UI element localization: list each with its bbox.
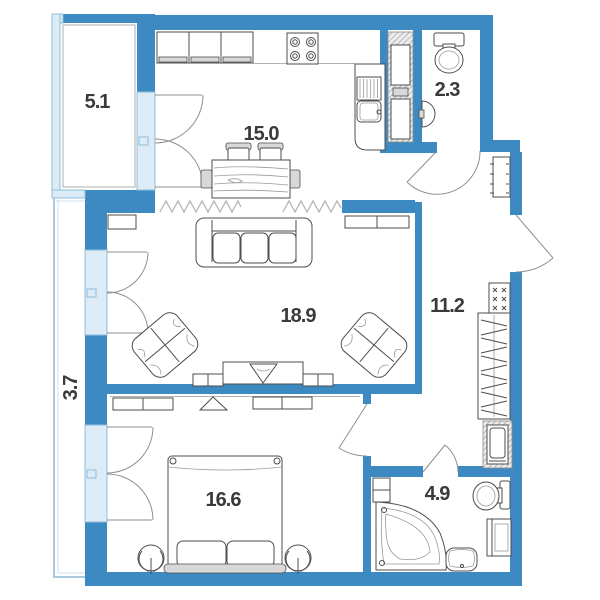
kitchen-counter-sink bbox=[355, 64, 385, 150]
nightstand-left bbox=[138, 545, 164, 574]
bed bbox=[164, 456, 286, 573]
room-label-balcony: 5.1 bbox=[85, 91, 111, 113]
balcony-french-door bbox=[137, 92, 203, 190]
hall-appliance-niche bbox=[483, 421, 512, 468]
bathroom-sink bbox=[446, 548, 477, 571]
dining-table bbox=[201, 143, 300, 198]
wardrobe-hangers bbox=[478, 313, 510, 419]
wc-door bbox=[407, 151, 480, 194]
bedroom-door bbox=[339, 404, 367, 456]
bathroom-door bbox=[423, 445, 458, 472]
bedroom-french-door bbox=[85, 425, 153, 522]
entry-door bbox=[516, 215, 553, 272]
shoe-cabinet bbox=[489, 283, 510, 313]
bedroom-storage-row bbox=[110, 397, 360, 411]
wall-break-zigzag bbox=[160, 201, 341, 212]
armchair-right bbox=[337, 309, 411, 382]
kitchen-cabinets bbox=[157, 32, 355, 64]
armchair-left bbox=[128, 309, 202, 382]
floor-plan: 5.1 15.0 2.3 18.9 11.2 3.7 16.6 4.9 bbox=[0, 0, 600, 600]
room-label-hall: 11.2 bbox=[430, 295, 465, 317]
sofa bbox=[196, 218, 312, 267]
room-label-loggia: 3.7 bbox=[60, 375, 82, 401]
washing-machine bbox=[487, 519, 511, 556]
floor-plan-canvas: 5.1 15.0 2.3 18.9 11.2 3.7 16.6 4.9 bbox=[0, 0, 600, 600]
kitchen-stove bbox=[287, 33, 318, 64]
room-label-living: 18.9 bbox=[281, 305, 317, 327]
room-label-bedroom: 16.6 bbox=[206, 489, 242, 511]
room-label-kitchen: 15.0 bbox=[244, 123, 280, 145]
electrical-panel bbox=[490, 157, 510, 197]
room-label-bathroom: 4.9 bbox=[425, 483, 451, 505]
corner-bathtub bbox=[376, 502, 446, 570]
wc-toilet bbox=[434, 33, 464, 73]
bathroom-toilet bbox=[473, 481, 510, 510]
living-french-door bbox=[85, 250, 148, 335]
tv-stand-living bbox=[193, 362, 333, 386]
fridge-column bbox=[388, 32, 413, 142]
nightstand-right bbox=[285, 545, 311, 574]
bathroom-shelf bbox=[373, 478, 390, 502]
room-label-wc: 2.3 bbox=[435, 79, 461, 101]
